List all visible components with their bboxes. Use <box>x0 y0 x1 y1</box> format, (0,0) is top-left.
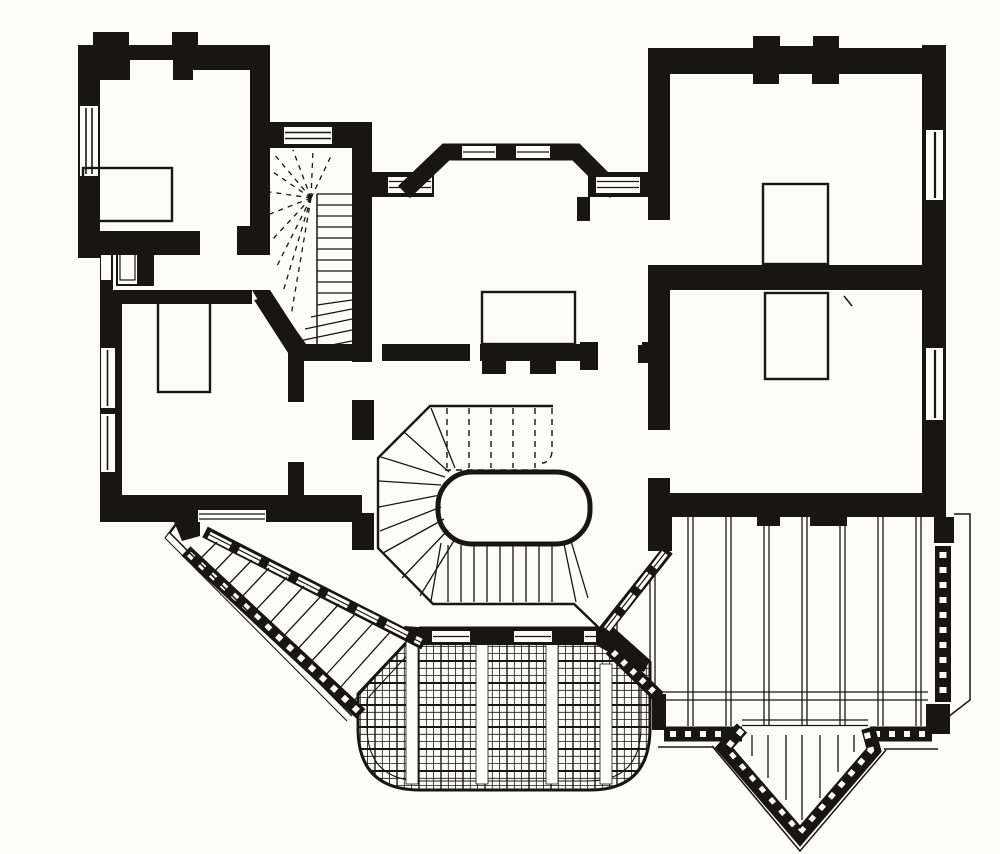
chimney-stack <box>93 32 129 47</box>
bottom-wall <box>78 231 200 255</box>
bottom-wall <box>648 493 946 517</box>
room-east-rect <box>810 517 847 526</box>
room-west-rect <box>288 462 304 496</box>
room-east-rect <box>638 345 648 363</box>
room-northeast-rect <box>780 36 813 46</box>
chimney-stack <box>172 32 198 47</box>
bottom-wall <box>480 344 580 361</box>
chimney-breast <box>753 74 779 84</box>
room-north-center-rect <box>482 361 506 374</box>
conservatory-veranda-center <box>358 626 650 790</box>
fireplace-recess <box>130 60 173 80</box>
window <box>80 106 98 176</box>
roof-mullion <box>546 634 558 784</box>
chimney-breast <box>812 74 839 84</box>
floor-plan-svg <box>0 0 1000 854</box>
top-wall <box>648 48 946 74</box>
window <box>596 177 640 193</box>
right-wall <box>352 122 372 362</box>
right-wall <box>250 45 270 231</box>
terrace-se-rect <box>652 694 666 730</box>
left-wall <box>648 48 670 220</box>
room-northwest-rect <box>237 226 270 255</box>
terrace-se-rect <box>934 517 954 543</box>
room-north-center-rect <box>580 342 598 370</box>
party-wall <box>648 265 946 290</box>
bottom-wall <box>382 344 470 361</box>
stair-well <box>438 472 590 544</box>
terrace-se-rect <box>648 517 672 551</box>
floor-plan-page <box>0 0 1000 854</box>
room-north-center-rect <box>577 197 590 221</box>
window-slot <box>101 253 111 280</box>
hall-walls-rect <box>352 400 374 440</box>
terrace-se-rect <box>926 704 950 734</box>
top-wall <box>78 45 270 70</box>
french-window <box>198 510 266 522</box>
right-wall <box>922 45 946 494</box>
room-north-center-rect <box>530 361 556 374</box>
left-wall <box>648 290 670 430</box>
room-east-rect <box>757 517 780 526</box>
roof-mullion <box>476 634 488 784</box>
window <box>284 127 332 144</box>
roof-mullion <box>600 664 612 784</box>
plan-root <box>0 0 1000 854</box>
roof-mullion <box>406 634 418 784</box>
terrace-se <box>603 514 970 749</box>
